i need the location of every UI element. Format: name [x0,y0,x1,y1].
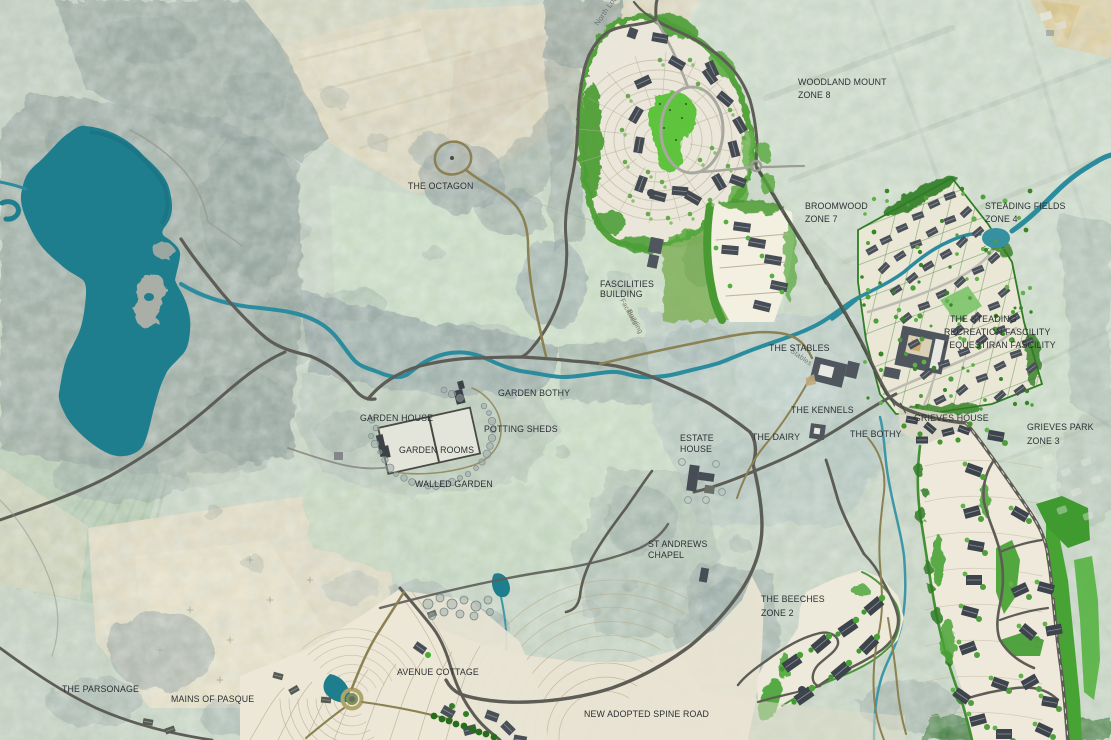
svg-text:ZONE 7: ZONE 7 [805,214,838,224]
svg-text:BUILDING: BUILDING [600,289,643,299]
svg-text:THE STEADING: THE STEADING [950,314,1017,324]
svg-text:WALLED GARDEN: WALLED GARDEN [415,479,493,489]
svg-text:GRIEVES PARK: GRIEVES PARK [1027,422,1094,432]
svg-text:THE PARSONAGE: THE PARSONAGE [62,684,139,694]
svg-text:ZONE 2: ZONE 2 [761,608,794,618]
svg-text:NEW ADOPTED SPINE ROAD: NEW ADOPTED SPINE ROAD [584,709,709,719]
svg-text:WOODLAND MOUNT: WOODLAND MOUNT [798,77,887,87]
svg-text:HOUSE: HOUSE [680,444,712,454]
svg-text:MAINS OF PASQUE: MAINS OF PASQUE [171,694,254,704]
svg-text:CHAPEL: CHAPEL [648,550,684,560]
svg-text:ZONE 8: ZONE 8 [798,90,831,100]
svg-text:THE BOTHY: THE BOTHY [850,429,902,439]
svg-text:GARDEN BOTHY: GARDEN BOTHY [498,388,570,398]
svg-text:STEADING FIELDS: STEADING FIELDS [985,201,1065,211]
svg-text:FASCILITIES: FASCILITIES [600,279,654,289]
svg-text:AVENUE COTTAGE: AVENUE COTTAGE [397,667,479,677]
svg-text:ZONE 4: ZONE 4 [985,214,1018,224]
svg-text:THE BEECHES: THE BEECHES [761,594,825,604]
svg-text:ESTATE: ESTATE [680,433,714,443]
svg-text:BROOMWOOD: BROOMWOOD [805,201,868,211]
svg-text:THE KENNELS: THE KENNELS [791,405,854,415]
svg-text:GRIEVES HOUSE: GRIEVES HOUSE [914,413,989,423]
svg-text:ZONE 3: ZONE 3 [1027,436,1060,446]
svg-text:/ EQUESTIRAN FASCILITY: / EQUESTIRAN FASCILITY [944,340,1056,350]
svg-text:THE DAIRY: THE DAIRY [752,432,800,442]
svg-text:GARDEN HOUSE: GARDEN HOUSE [360,413,433,423]
svg-text:GARDEN ROOMS: GARDEN ROOMS [399,445,474,455]
svg-text:RECREATION FASCILITY: RECREATION FASCILITY [944,327,1050,337]
svg-text:ST ANDREWS: ST ANDREWS [648,539,708,549]
svg-text:THE OCTAGON: THE OCTAGON [408,181,474,191]
svg-text:POTTING SHEDS: POTTING SHEDS [484,424,558,434]
